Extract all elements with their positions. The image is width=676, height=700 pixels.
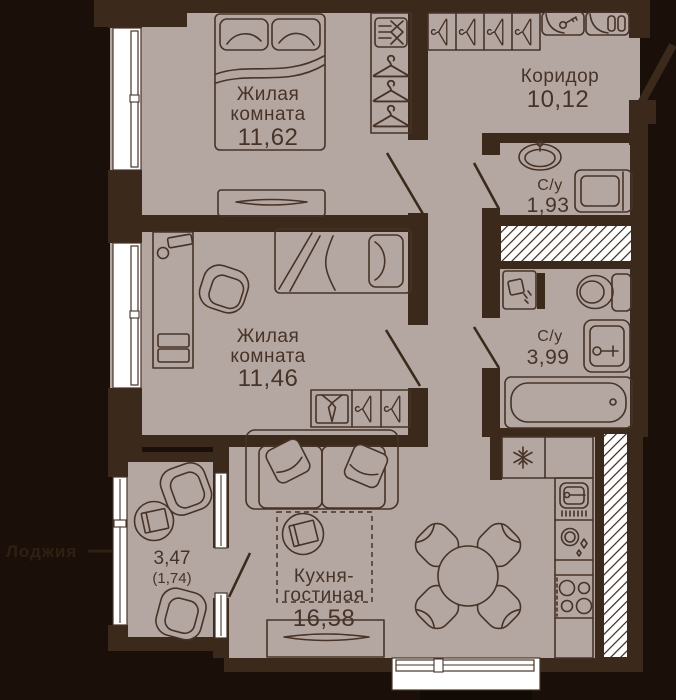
kitchen-name: гостиная — [283, 585, 364, 606]
loggia-area-coeff: (1,74) — [152, 570, 191, 587]
room1-window-icon — [113, 28, 141, 170]
kitchen-name: Кухня- — [294, 566, 354, 587]
loggia-area: 3,47 — [154, 548, 191, 569]
vent-shaft-hatch-icon — [603, 433, 628, 658]
room2-name: Жилая — [237, 326, 300, 347]
pillow-icon — [272, 19, 320, 50]
loggia-door-gap — [213, 548, 229, 598]
floor-plan-page: Жилая комната 11,62 Жилая комната 11,46 … — [0, 0, 676, 700]
kitchen-window-icon — [392, 658, 540, 690]
room1-area: 11,62 — [238, 124, 299, 151]
kitchen-area: 16,58 — [293, 605, 356, 632]
bathroom1-area: 1,93 — [527, 194, 570, 217]
vent-shaft-hatch-icon — [500, 225, 632, 262]
corridor-area: 10,12 — [527, 86, 590, 113]
room2-area: 11,46 — [238, 365, 299, 392]
loggia-callout: Лоджия — [6, 542, 77, 561]
room2-window-icon — [113, 243, 141, 388]
bathroom2-area: 3,99 — [527, 346, 570, 369]
coffee-table-icon — [283, 514, 324, 555]
corridor-name: Коридор — [521, 66, 600, 87]
room2-name: комната — [230, 346, 305, 367]
bathroom1-name: С/у — [537, 177, 563, 194]
bathroom2-name: С/у — [537, 328, 563, 345]
pillow-icon — [369, 235, 403, 287]
floor-plan: Жилая комната 11,62 Жилая комната 11,46 … — [0, 0, 676, 700]
room1-name: комната — [230, 104, 305, 125]
room1-name: Жилая — [237, 84, 300, 105]
dining-table-icon — [438, 546, 498, 606]
side-table-icon — [135, 502, 174, 541]
loggia-window-icon — [113, 477, 127, 625]
